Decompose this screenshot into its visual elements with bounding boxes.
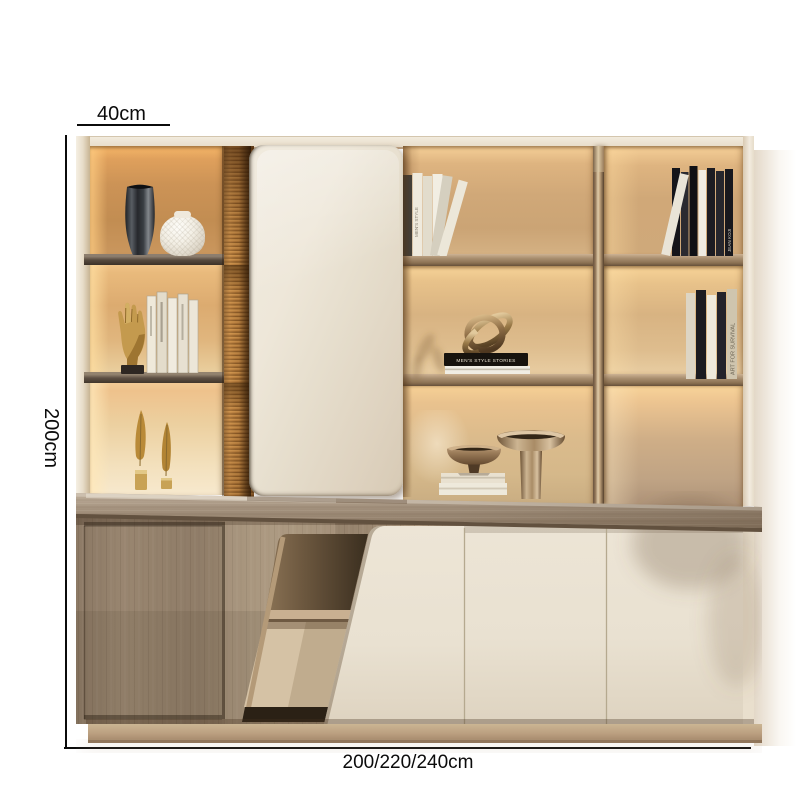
svg-text:MEN'S STYLE: MEN'S STYLE: [414, 207, 419, 237]
svg-text:MEN'S STYLE STORIES: MEN'S STYLE STORIES: [456, 358, 515, 364]
svg-text:ART FOR SURVIVAL: ART FOR SURVIVAL: [731, 323, 737, 375]
svg-text:JEAN KOJI: JEAN KOJI: [727, 229, 732, 252]
